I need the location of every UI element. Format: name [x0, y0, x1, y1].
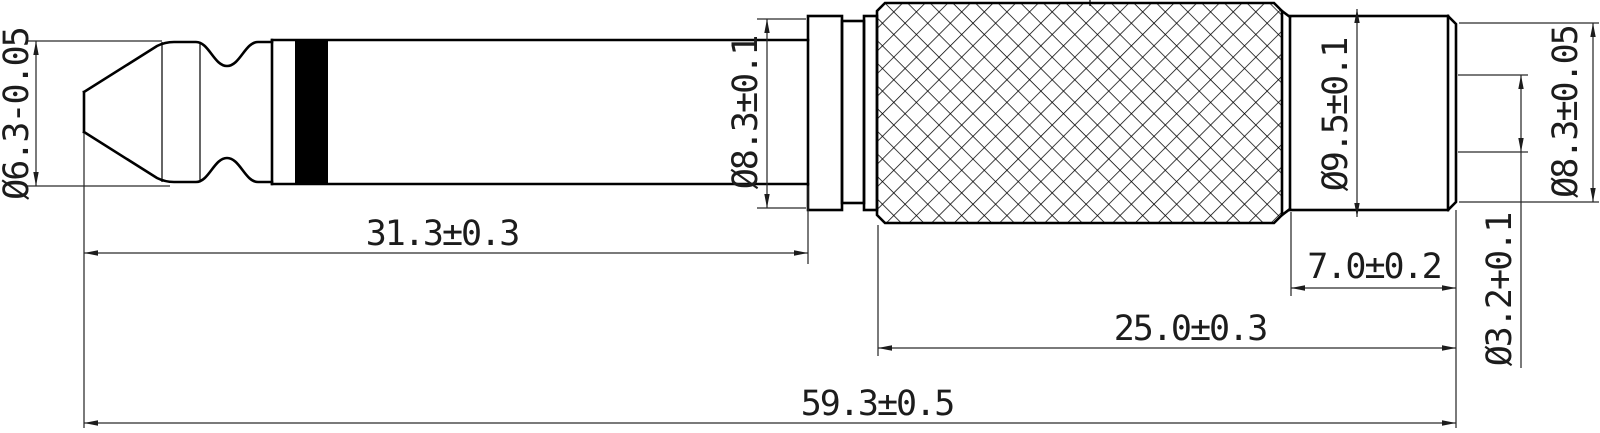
dim-end-diameter: Ø8.3±0.05	[1459, 23, 1599, 202]
extension-lines	[84, 133, 808, 428]
dim-label: 25.0±0.3	[1114, 309, 1267, 349]
technical-drawing-canvas: Ø6.3-0.05 31.3±0.3 Ø8.3±0.1 Ø9.5±0.1 7.0…	[0, 0, 1600, 433]
dim-label: Ø3.2+0.1	[1480, 214, 1520, 367]
arrowhead-left	[878, 345, 892, 350]
collar-ring-large	[808, 16, 842, 210]
arrowhead-down	[764, 194, 769, 208]
arrowhead-down	[1518, 138, 1523, 152]
dim-body-length: 25.0±0.3	[878, 225, 1456, 356]
arrowhead-right	[1442, 345, 1456, 350]
arrowhead-up	[1590, 23, 1595, 37]
dim-label: Ø9.5±0.1	[1316, 39, 1356, 192]
dim-label: 59.3±0.5	[801, 384, 954, 424]
dim-label: Ø8.3±0.1	[726, 37, 766, 190]
insulator-ring	[295, 40, 328, 184]
extension-lines	[26, 41, 170, 186]
dim-label: Ø8.3±0.05	[1546, 26, 1586, 198]
arrowhead-right	[1442, 285, 1456, 290]
knurl-barrel	[877, 3, 1282, 223]
dim-label: 31.3±0.3	[366, 214, 519, 254]
plug-tip-outline	[84, 42, 272, 182]
collar-ring-middle	[842, 21, 864, 203]
adapter-drawing: Ø6.3-0.05 31.3±0.3 Ø8.3±0.1 Ø9.5±0.1 7.0…	[0, 0, 1600, 433]
arrowhead-left	[84, 250, 98, 255]
arrowhead-right	[1442, 420, 1456, 425]
dim-label: Ø6.3-0.05	[0, 28, 37, 200]
arrowhead-right	[794, 250, 808, 255]
arrowhead-up	[764, 19, 769, 33]
dim-label: 7.0±0.2	[1307, 247, 1441, 287]
extension-lines	[1291, 210, 1456, 428]
dim-overall-length: 59.3±0.5	[84, 384, 1456, 426]
dim-neck-length: 7.0±0.2	[1291, 210, 1456, 428]
dim-hole-diameter: Ø3.2+0.1	[1458, 75, 1528, 368]
dim-collar-diameter: Ø8.3±0.1	[726, 19, 806, 208]
dim-tip-length: 31.3±0.3	[84, 133, 808, 428]
extension-lines	[1458, 75, 1528, 152]
dim-body-diameter: Ø9.5±0.1	[1316, 9, 1360, 217]
collar-ring-thin	[864, 16, 877, 210]
tip-tangent-lines	[162, 42, 200, 182]
arrowhead-left	[84, 420, 98, 425]
arrowhead-up	[1518, 75, 1523, 89]
arrowhead-left	[1291, 285, 1305, 290]
arrowhead-down	[1590, 188, 1595, 202]
plug-body	[84, 0, 1456, 223]
rear-smooth-section	[1290, 16, 1448, 210]
